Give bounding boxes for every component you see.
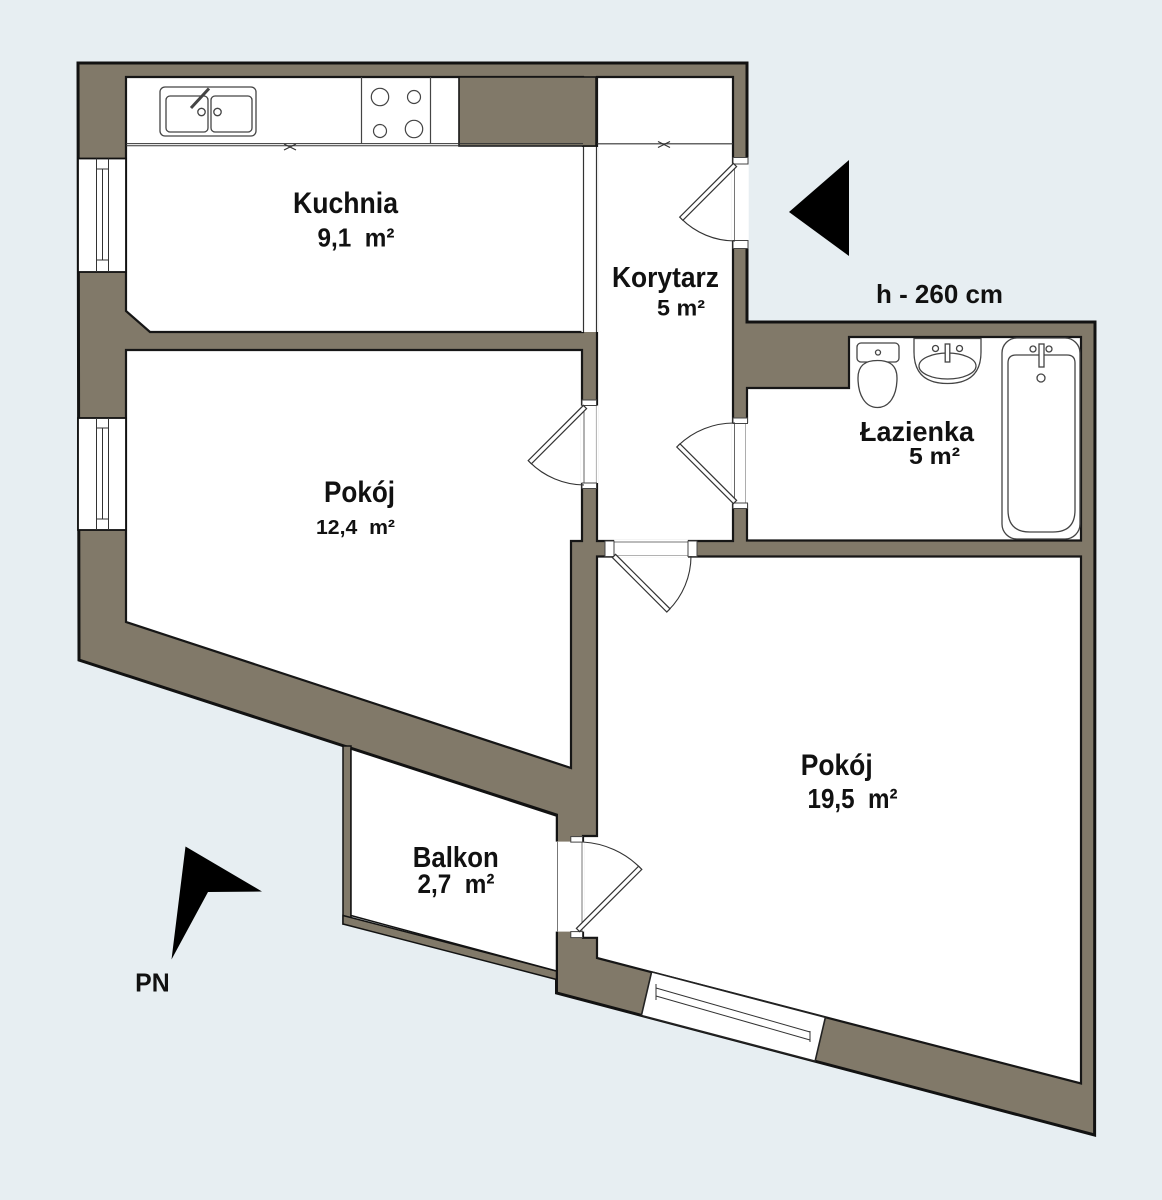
svg-text:Pokój: Pokój xyxy=(801,749,873,782)
svg-text:h - 260 cm: h - 260 cm xyxy=(876,279,1003,309)
svg-text:9,1 m²: 9,1 m² xyxy=(318,223,395,253)
svg-text:19,5 m²: 19,5 m² xyxy=(808,783,898,814)
svg-text:5 m²: 5 m² xyxy=(909,443,960,469)
svg-text:Kuchnia: Kuchnia xyxy=(293,187,399,220)
svg-text:Korytarz: Korytarz xyxy=(612,262,719,294)
svg-text:Pokój: Pokój xyxy=(324,476,395,509)
svg-text:PN: PN xyxy=(135,968,170,998)
svg-text:5 m²: 5 m² xyxy=(657,296,705,321)
svg-text:2,7 m²: 2,7 m² xyxy=(418,869,495,899)
svg-text:12,4 m²: 12,4 m² xyxy=(316,517,395,539)
